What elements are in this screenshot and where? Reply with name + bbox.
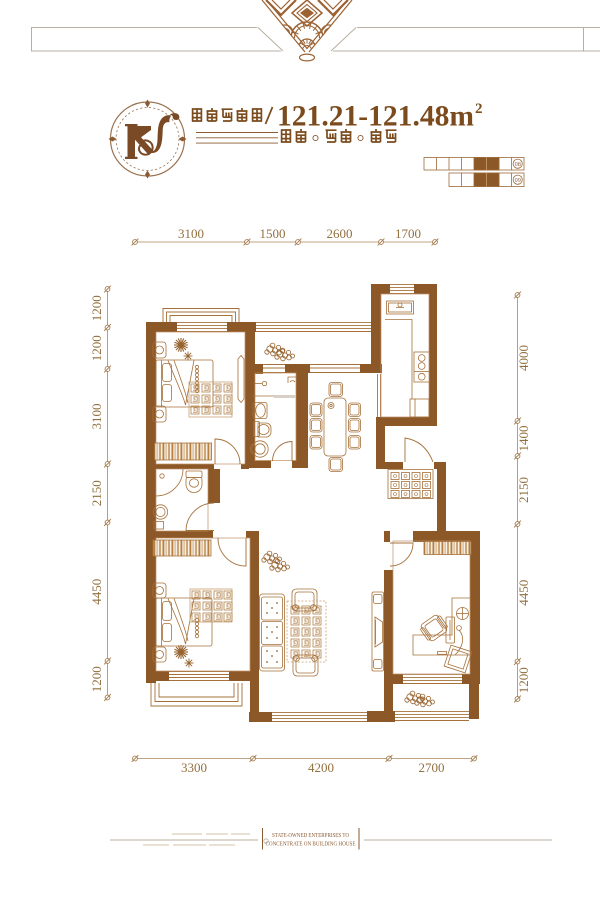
svg-text:3100: 3100 (178, 226, 204, 241)
svg-text:1200: 1200 (89, 335, 104, 361)
svg-text:1500: 1500 (260, 226, 286, 241)
svg-text:1400: 1400 (516, 426, 531, 452)
svg-text:2700: 2700 (419, 760, 445, 775)
svg-text:3300: 3300 (181, 760, 207, 775)
svg-text:2150: 2150 (89, 480, 104, 506)
svg-text:4000: 4000 (516, 345, 531, 371)
svg-text:1700: 1700 (395, 226, 421, 241)
svg-text:09: 09 (515, 177, 521, 184)
svg-text:3100: 3100 (89, 404, 104, 430)
svg-text:2: 2 (475, 101, 483, 117)
svg-text:CONCENTRATE ON BUILDING HOUSE: CONCENTRATE ON BUILDING HOUSE (266, 842, 356, 848)
svg-text:4450: 4450 (516, 580, 531, 606)
svg-text:1200: 1200 (89, 295, 104, 321)
svg-text:2600: 2600 (327, 226, 353, 241)
svg-text:STATE-OWNED ENTERPRISES TO: STATE-OWNED ENTERPRISES TO (272, 833, 350, 839)
svg-text:4200: 4200 (308, 760, 334, 775)
svg-text:1200: 1200 (516, 667, 531, 693)
svg-text:08: 08 (515, 161, 521, 168)
svg-text:4450: 4450 (89, 579, 104, 605)
svg-text:1200: 1200 (89, 666, 104, 692)
svg-text:2150: 2150 (516, 477, 531, 503)
svg-text:121.21-121.48m: 121.21-121.48m (277, 100, 474, 133)
